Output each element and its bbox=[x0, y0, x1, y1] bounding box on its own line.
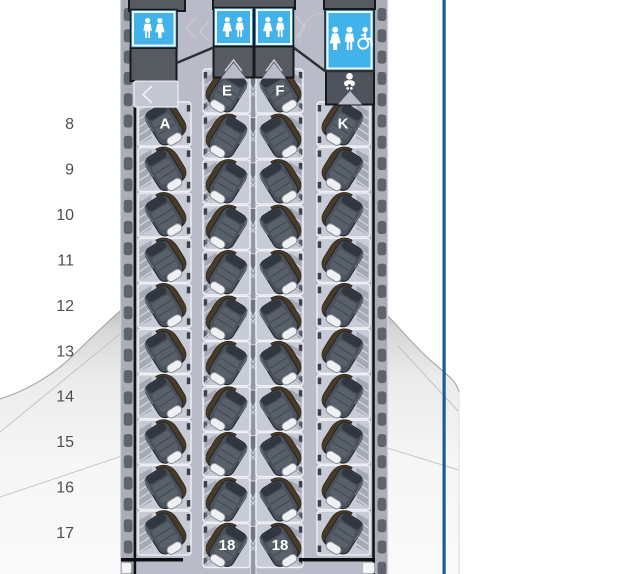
seat-unit-E11 bbox=[200, 199, 251, 253]
seat-unit-K14 bbox=[316, 369, 370, 423]
seat-unit-A13 bbox=[138, 323, 192, 377]
seat-unit-F10 bbox=[256, 154, 307, 208]
door-threshold-right bbox=[299, 558, 375, 562]
door-left bbox=[122, 563, 132, 574]
seat-unit-F14 bbox=[256, 336, 307, 390]
seat-unit-A11 bbox=[138, 232, 192, 286]
seat-unit-E15 bbox=[200, 381, 251, 435]
seat-label-E8: E bbox=[222, 83, 232, 100]
seat-unit-E12 bbox=[200, 245, 251, 299]
row-number-10: 10 bbox=[56, 207, 74, 224]
seat-map: A E bbox=[0, 0, 640, 574]
seat-unit-E13 bbox=[200, 290, 251, 344]
row-number-15: 15 bbox=[56, 434, 74, 451]
seat-unit-F18: 18 bbox=[256, 517, 307, 571]
seat-unit-E17 bbox=[200, 472, 251, 526]
row-number-14: 14 bbox=[56, 389, 74, 406]
seat-unit-A12 bbox=[138, 278, 192, 332]
seat-unit-K13 bbox=[316, 323, 370, 377]
lavatory-front-left bbox=[131, 10, 178, 49]
seat-unit-K10 bbox=[316, 187, 370, 241]
seat-unit-K17 bbox=[316, 505, 370, 559]
seat-unit-A14 bbox=[138, 369, 192, 423]
seat-unit-E9 bbox=[200, 108, 251, 162]
row-number-11: 11 bbox=[57, 252, 74, 269]
lavatory-center-left bbox=[214, 8, 254, 47]
seat-label-F18: 18 bbox=[272, 537, 289, 554]
seat-unit-K9 bbox=[316, 141, 370, 195]
stowage-front-left bbox=[131, 48, 177, 81]
cabin-boundary-line bbox=[443, 0, 446, 574]
door-right bbox=[363, 563, 375, 574]
seat-unit-E18: 18 bbox=[200, 517, 251, 571]
seat-unit-K16 bbox=[316, 460, 370, 514]
row-number-9: 9 bbox=[65, 161, 74, 178]
row-number-13: 13 bbox=[56, 343, 74, 360]
seat-label-K8: K bbox=[338, 116, 349, 133]
seat-unit-F11 bbox=[256, 199, 307, 253]
seat-unit-A9 bbox=[138, 141, 192, 195]
seat-label-E18: 18 bbox=[219, 537, 236, 554]
seat-unit-K11 bbox=[316, 232, 370, 286]
row-number-16: 16 bbox=[56, 480, 74, 497]
closet-center-left bbox=[214, 47, 254, 79]
galley-front-right bbox=[324, 0, 375, 9]
wardrobe-front-left bbox=[134, 81, 178, 107]
baby-care-station bbox=[326, 71, 374, 105]
lavatory-center-right bbox=[255, 8, 294, 47]
seat-label-A8: A bbox=[160, 116, 171, 133]
seat-unit-E16 bbox=[200, 427, 251, 481]
closet-center-right bbox=[255, 47, 294, 79]
seat-label-F8: F bbox=[275, 83, 284, 100]
row-number-12: 12 bbox=[56, 298, 74, 315]
seat-unit-F15 bbox=[256, 381, 307, 435]
seat-unit-A17 bbox=[138, 505, 192, 559]
seat-unit-A15 bbox=[138, 414, 192, 468]
seat-unit-A16 bbox=[138, 460, 192, 514]
seat-unit-F9 bbox=[256, 108, 307, 162]
seat-unit-F16 bbox=[256, 427, 307, 481]
lavatory-accessible bbox=[325, 10, 374, 72]
seat-unit-K12 bbox=[316, 278, 370, 332]
door-threshold-left bbox=[121, 558, 183, 562]
row-number-8: 8 bbox=[65, 116, 74, 133]
seat-unit-A10 bbox=[138, 187, 192, 241]
seat-unit-F17 bbox=[256, 472, 307, 526]
seat-unit-F12 bbox=[256, 245, 307, 299]
seat-unit-E14 bbox=[200, 336, 251, 390]
seat-unit-E10 bbox=[200, 154, 251, 208]
seat-unit-K15 bbox=[316, 414, 370, 468]
row-number-17: 17 bbox=[56, 525, 74, 542]
seat-map-canvas: A E bbox=[0, 0, 640, 574]
seat-unit-F13 bbox=[256, 290, 307, 344]
